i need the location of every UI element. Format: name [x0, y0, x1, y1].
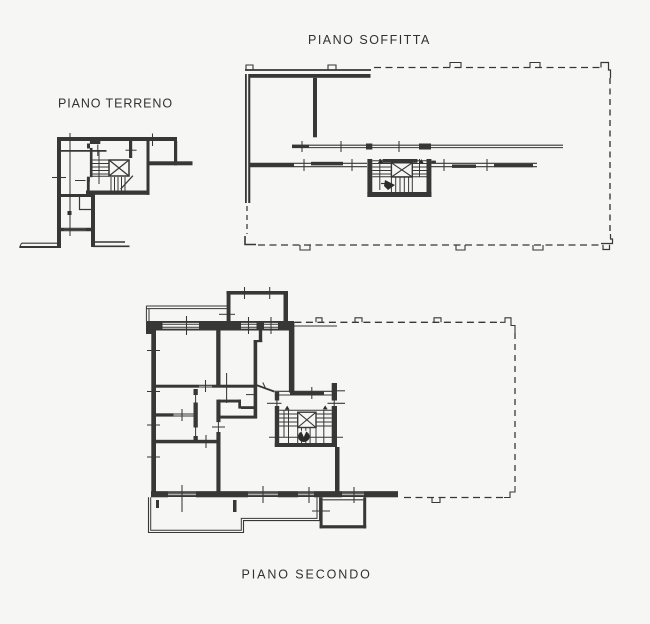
- svg-text:PIANO TERRENO: PIANO TERRENO: [58, 97, 173, 111]
- svg-text:PIANO SOFFITTA: PIANO SOFFITTA: [308, 33, 431, 47]
- svg-text:PIANO SECONDO: PIANO SECONDO: [242, 568, 372, 582]
